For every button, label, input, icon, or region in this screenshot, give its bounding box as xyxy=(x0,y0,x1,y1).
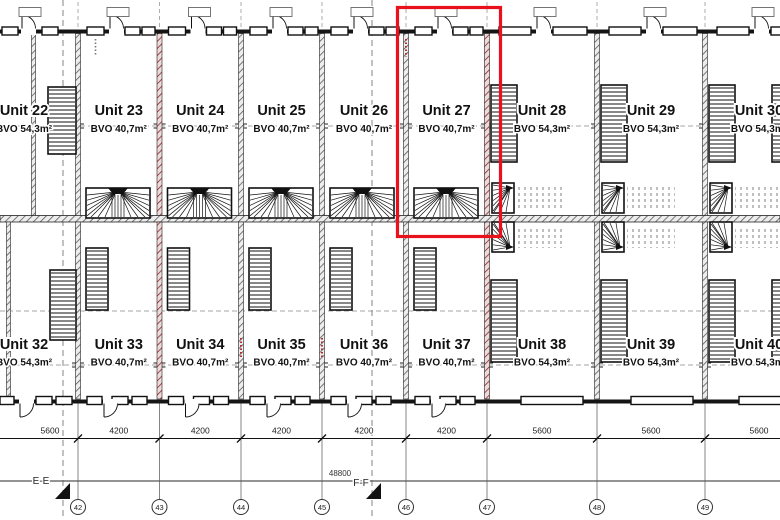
dimension-label: 4200 xyxy=(109,426,128,436)
unit-label: Unit 26 xyxy=(340,103,388,119)
window-symbol xyxy=(2,27,18,35)
window-symbol xyxy=(717,27,749,35)
window-symbol xyxy=(142,27,155,35)
window-symbol xyxy=(499,27,531,35)
party-wall xyxy=(404,222,409,399)
entrance-canopy xyxy=(270,8,292,17)
window-symbol xyxy=(521,397,583,405)
door-opening xyxy=(191,28,206,35)
window-symbol xyxy=(553,27,587,35)
party-wall xyxy=(320,222,325,399)
window-symbol xyxy=(771,27,780,35)
unit-area-label: BVO 54,3m² xyxy=(623,358,680,369)
door-opening xyxy=(103,399,118,406)
party-wall xyxy=(595,34,600,216)
window-symbol xyxy=(224,27,237,35)
unit-label: Unit 33 xyxy=(95,337,143,353)
unit-area-label: BVO 40,7m² xyxy=(253,358,310,369)
floor-plan-canvas: Unit 22BVO 54,3m²Unit 32BVO 54,3m²Unit 2… xyxy=(0,0,780,520)
unit-area-label: BVO 54,3m² xyxy=(731,358,780,369)
window-symbol xyxy=(169,27,186,35)
party-wall xyxy=(404,34,409,216)
window-symbol xyxy=(631,397,693,405)
unit-area-label: BVO 40,7m² xyxy=(336,124,393,135)
stair-flight-above-dashed xyxy=(735,187,780,209)
door-opening xyxy=(437,28,452,35)
entrance-canopy xyxy=(644,8,666,17)
unit-label: Unit 34 xyxy=(176,337,224,353)
window-symbol xyxy=(36,397,52,405)
dimension-label: 4200 xyxy=(272,426,291,436)
grid-bubble-number: 42 xyxy=(74,503,82,512)
background xyxy=(0,0,780,520)
unit-label: Unit 40 xyxy=(735,337,780,353)
floor-plan-drawing: Unit 22BVO 54,3m²Unit 32BVO 54,3m²Unit 2… xyxy=(0,0,780,520)
grid-bubble-number: 48 xyxy=(593,503,601,512)
unit-label: Unit 35 xyxy=(257,337,305,353)
unit-area-label: BVO 54,3m² xyxy=(0,358,53,369)
window-symbol xyxy=(295,397,310,405)
party-wall-red xyxy=(157,34,162,216)
window-symbol xyxy=(87,397,102,405)
unit-label: Unit 23 xyxy=(95,103,143,119)
window-symbol xyxy=(42,27,58,35)
dimension-label: 4200 xyxy=(355,426,374,436)
unit-area-label: BVO 40,7m² xyxy=(336,358,393,369)
door-opening xyxy=(646,28,661,35)
door-opening xyxy=(185,399,200,406)
window-symbol xyxy=(460,397,475,405)
unit-label: Unit 38 xyxy=(518,337,566,353)
unit-label: Unit 36 xyxy=(340,337,388,353)
entrance-canopy xyxy=(534,8,556,17)
door-opening xyxy=(536,28,551,35)
straight-stair-symbol xyxy=(48,87,76,154)
window-symbol xyxy=(609,27,641,35)
grid-bubble-number: 44 xyxy=(237,503,245,512)
partition-wall xyxy=(7,222,11,399)
grid-bubble-number: 43 xyxy=(155,503,163,512)
door-opening xyxy=(266,399,281,406)
grid-bubble-number: 45 xyxy=(318,503,326,512)
unit-area-label: BVO 40,7m² xyxy=(418,358,475,369)
window-symbol xyxy=(376,397,391,405)
dimension-label: 5600 xyxy=(750,426,769,436)
window-symbol xyxy=(132,397,147,405)
unit-label: Unit 24 xyxy=(176,103,224,119)
unit-label: Unit 39 xyxy=(627,337,675,353)
party-wall-red xyxy=(157,222,162,399)
window-symbol xyxy=(470,27,483,35)
door-opening xyxy=(109,28,124,35)
dimension-label: 4200 xyxy=(437,426,456,436)
party-wall xyxy=(239,222,244,399)
total-dimension-label: 48800 xyxy=(329,469,352,478)
party-wall xyxy=(595,222,600,399)
entrance-canopy xyxy=(351,8,373,17)
unit-area-label: BVO 40,7m² xyxy=(172,124,229,135)
party-wall-red xyxy=(485,34,490,216)
unit-label: Unit 32 xyxy=(0,337,48,353)
straight-stair-symbol xyxy=(601,280,627,362)
stair-flight-above-dashed xyxy=(627,226,675,248)
grid-bubble-number: 46 xyxy=(402,503,410,512)
window-symbol xyxy=(415,397,430,405)
unit-area-label: BVO 40,7m² xyxy=(253,124,310,135)
dimension-label: 4200 xyxy=(191,426,210,436)
window-symbol xyxy=(56,397,72,405)
party-wall xyxy=(703,34,708,216)
dimension-label: 5600 xyxy=(533,426,552,436)
door-opening xyxy=(347,399,362,406)
unit-area-label: BVO 54,3m² xyxy=(514,358,571,369)
unit-area-label: BVO 40,7m² xyxy=(172,358,229,369)
unit-label: Unit 29 xyxy=(627,103,675,119)
entrance-canopy xyxy=(189,8,211,17)
stair-flight-above-dashed xyxy=(517,187,565,209)
entrance-canopy xyxy=(752,8,774,17)
window-symbol xyxy=(739,397,780,405)
party-wall xyxy=(320,34,325,216)
section-marker-ee: E-E xyxy=(33,476,50,487)
stair-flight-above-dashed xyxy=(517,226,565,248)
entrance-canopy xyxy=(107,8,129,17)
window-symbol xyxy=(0,397,14,405)
straight-stair-symbol xyxy=(491,280,517,362)
window-symbol xyxy=(125,27,140,35)
unit-area-label: BVO 40,7m² xyxy=(91,358,148,369)
unit-area-label: BVO 54,3m² xyxy=(623,124,680,135)
window-symbol xyxy=(214,397,229,405)
window-symbol xyxy=(250,27,267,35)
window-symbol xyxy=(87,27,104,35)
unit-area-label: BVO 40,7m² xyxy=(91,124,148,135)
unit-label: Unit 27 xyxy=(422,103,470,119)
unit-area-label: BVO 54,3m² xyxy=(514,124,571,135)
window-symbol xyxy=(369,27,384,35)
unit-area-label: BVO 40,7m² xyxy=(418,124,475,135)
entrance-canopy xyxy=(19,8,41,17)
stair-flight-above-dashed xyxy=(627,187,675,209)
window-symbol xyxy=(305,27,318,35)
door-opening xyxy=(431,399,446,406)
unit-label: Unit 37 xyxy=(422,337,470,353)
grid-bubble-number: 47 xyxy=(483,503,491,512)
party-wall-red xyxy=(485,222,490,399)
door-opening xyxy=(353,28,368,35)
dimension-label: 5600 xyxy=(642,426,661,436)
unit-label: Unit 28 xyxy=(518,103,566,119)
window-symbol xyxy=(169,397,184,405)
dimension-label: 5600 xyxy=(41,426,60,436)
window-symbol xyxy=(288,27,303,35)
window-symbol xyxy=(415,27,432,35)
stair-flight-above-dashed xyxy=(735,226,780,248)
window-symbol xyxy=(207,27,222,35)
window-symbol xyxy=(331,27,348,35)
party-wall xyxy=(703,222,708,399)
window-symbol xyxy=(331,397,346,405)
unit-label: Unit 22 xyxy=(0,103,48,119)
window-symbol xyxy=(663,27,697,35)
grid-bubble-number: 49 xyxy=(701,503,709,512)
door-opening xyxy=(272,28,287,35)
unit-area-label: BVO 54,3m² xyxy=(731,124,780,135)
unit-label: Unit 25 xyxy=(257,103,305,119)
door-opening xyxy=(19,399,34,406)
door-opening xyxy=(21,28,36,35)
door-opening xyxy=(754,28,769,35)
unit-label: Unit 30 xyxy=(735,103,780,119)
unit-area-label: BVO 54,3m² xyxy=(0,124,53,135)
section-marker-ff: F-F xyxy=(353,478,369,489)
window-symbol xyxy=(453,27,468,35)
window-symbol xyxy=(250,397,265,405)
party-wall xyxy=(239,34,244,216)
straight-stair-symbol xyxy=(709,280,735,362)
